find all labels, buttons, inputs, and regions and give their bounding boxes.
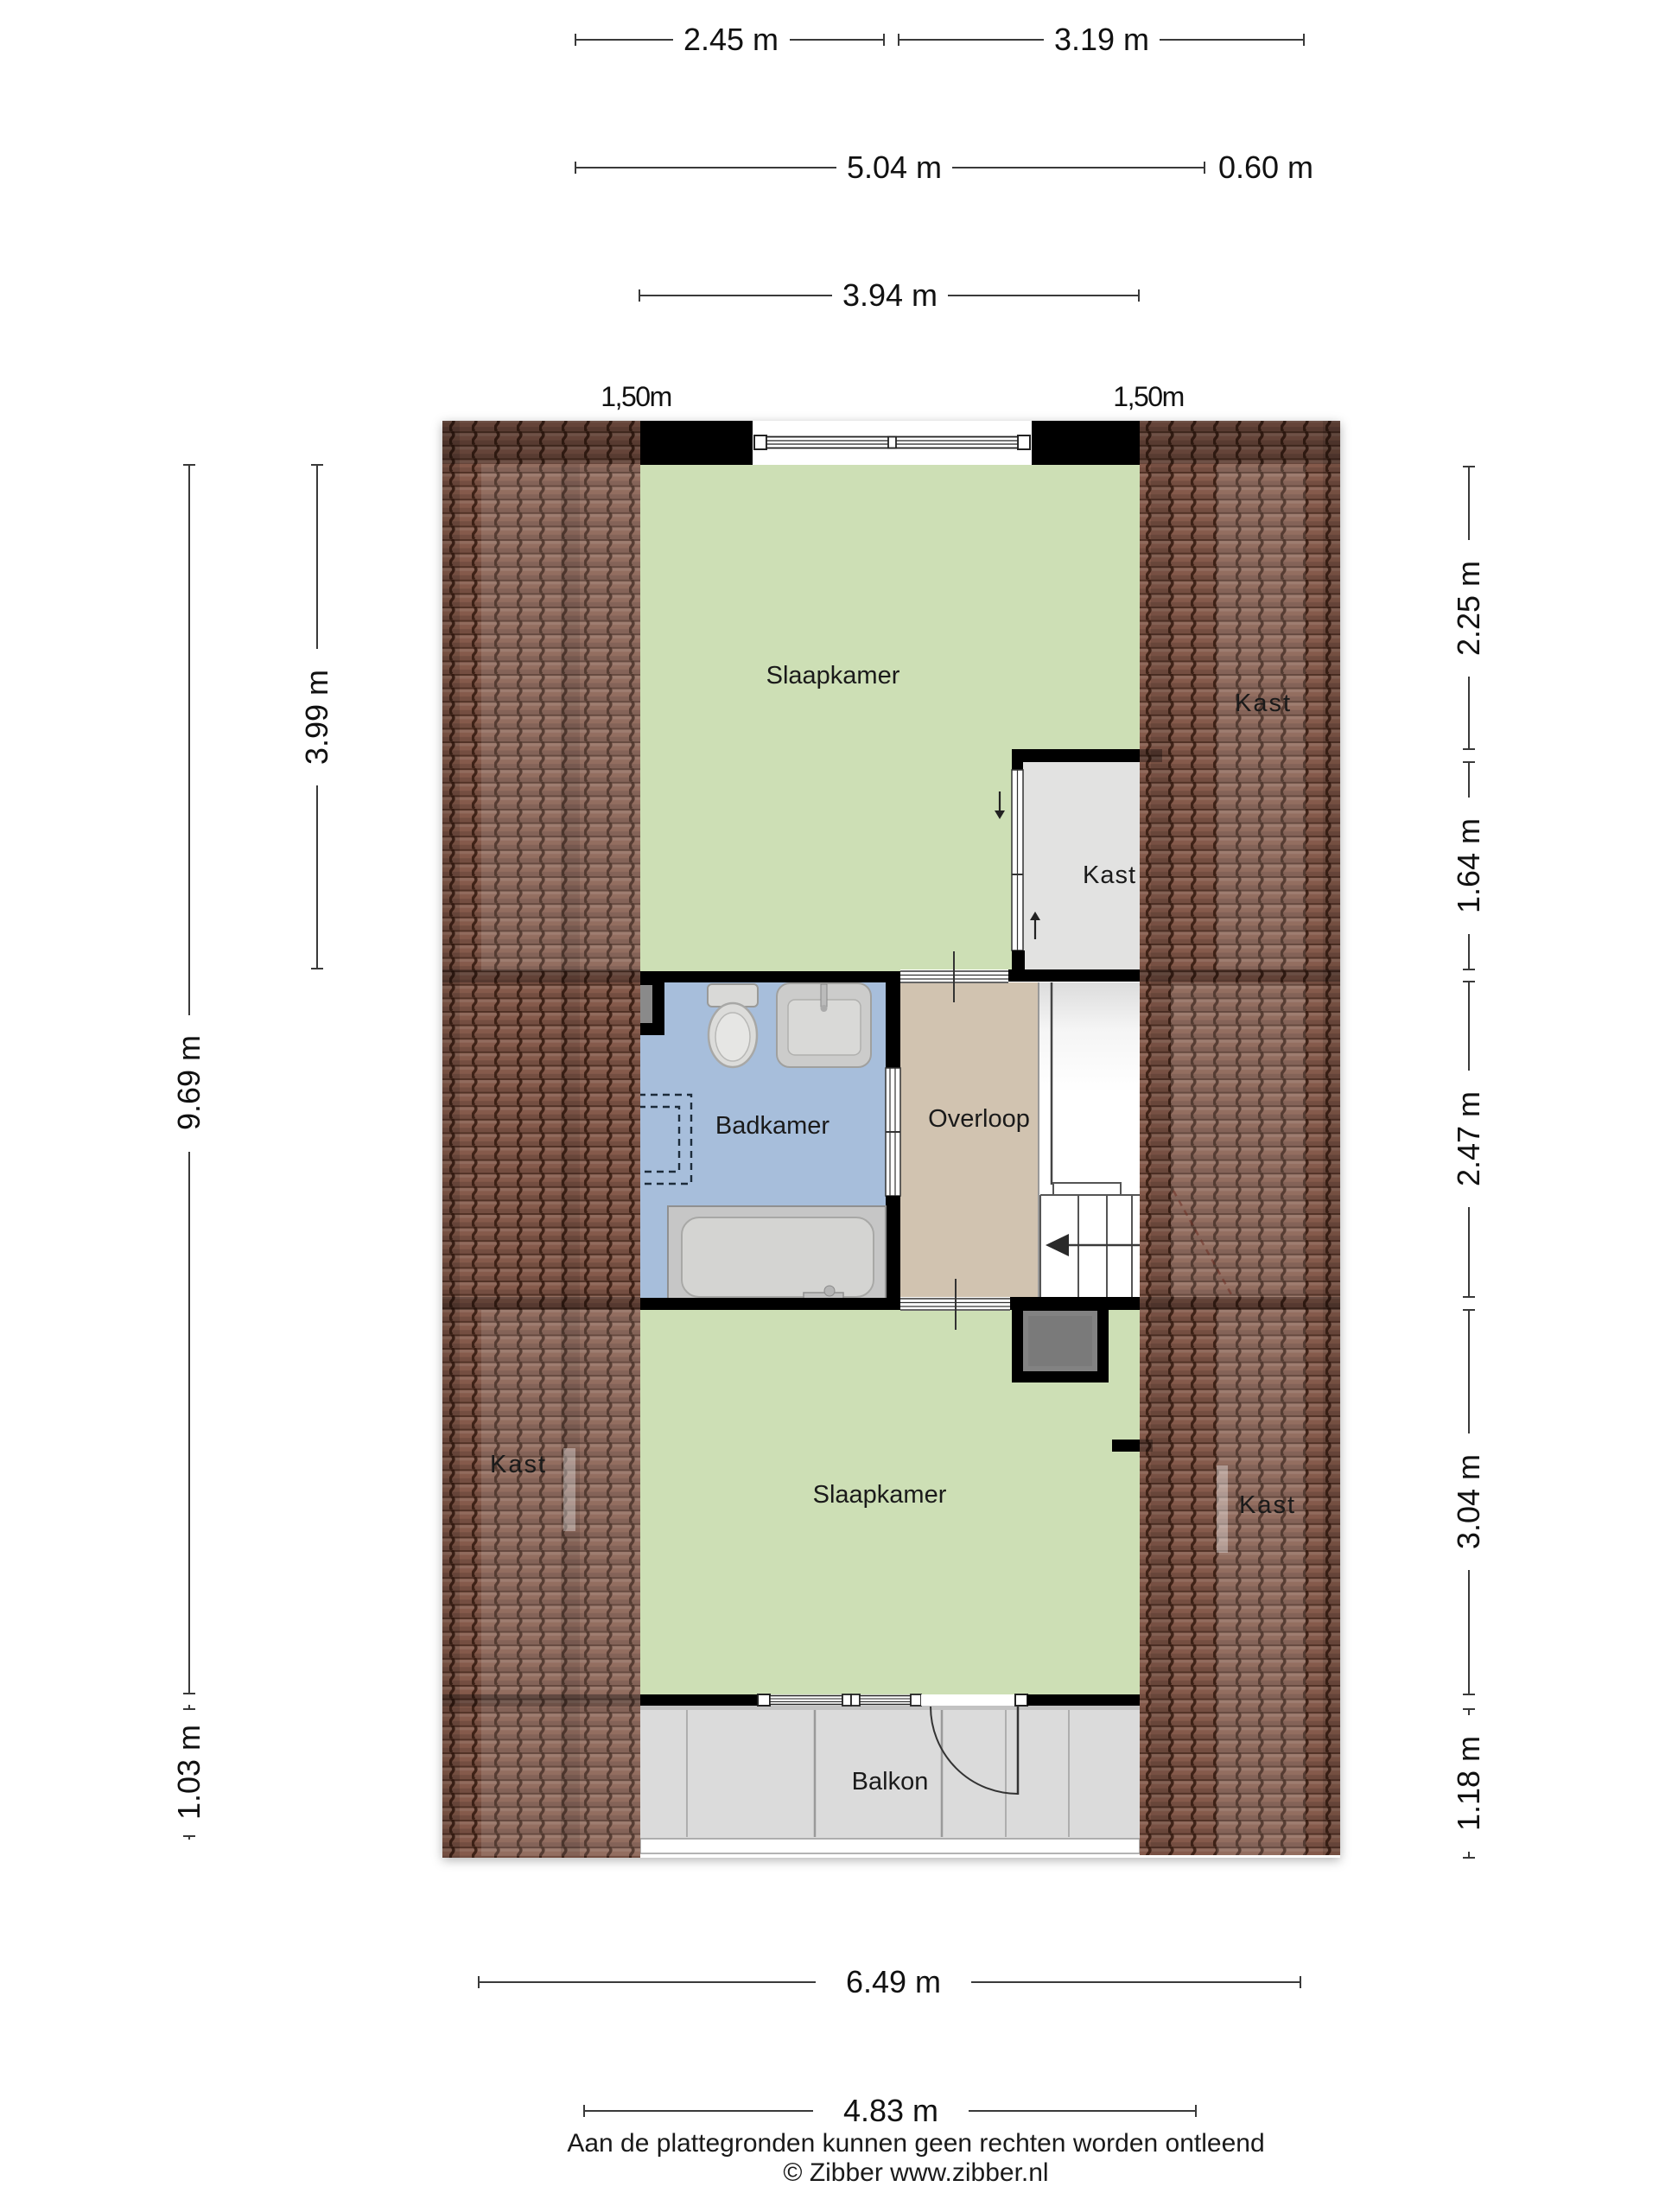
svg-text:3.19 m: 3.19 m bbox=[1054, 22, 1149, 57]
svg-text:4.83 m: 4.83 m bbox=[843, 2093, 938, 2128]
svg-text:Kast: Kast bbox=[490, 1451, 547, 1478]
svg-text:1.03 m: 1.03 m bbox=[171, 1725, 207, 1820]
svg-text:3.94 m: 3.94 m bbox=[842, 277, 938, 313]
svg-text:Slaapkamer: Slaapkamer bbox=[766, 662, 900, 690]
svg-text:Kast: Kast bbox=[1239, 1491, 1296, 1519]
svg-text:1,50m: 1,50m bbox=[601, 381, 671, 412]
svg-text:3.04 m: 3.04 m bbox=[1451, 1454, 1486, 1549]
svg-text:2.47 m: 2.47 m bbox=[1451, 1091, 1486, 1186]
svg-text:3.99 m: 3.99 m bbox=[299, 670, 334, 765]
svg-text:1,50m: 1,50m bbox=[1113, 381, 1183, 412]
svg-text:1.64 m: 1.64 m bbox=[1451, 818, 1486, 913]
svg-text:Badkamer: Badkamer bbox=[715, 1112, 830, 1140]
svg-text:2.25 m: 2.25 m bbox=[1451, 561, 1486, 656]
svg-text:0.60 m: 0.60 m bbox=[1218, 149, 1313, 185]
svg-text:5.04 m: 5.04 m bbox=[847, 149, 942, 185]
svg-text:2.45 m: 2.45 m bbox=[683, 22, 779, 57]
svg-text:Aan de plattegronden kunnen ge: Aan de plattegronden kunnen geen rechten… bbox=[567, 2129, 1264, 2158]
svg-text:6.49 m: 6.49 m bbox=[846, 1964, 941, 1999]
svg-text:Slaapkamer: Slaapkamer bbox=[813, 1481, 947, 1509]
svg-text:9.69 m: 9.69 m bbox=[171, 1035, 207, 1130]
svg-text:© Zibber www.zibber.nl: © Zibber www.zibber.nl bbox=[783, 2158, 1048, 2187]
svg-text:1.18 m: 1.18 m bbox=[1451, 1736, 1486, 1831]
svg-text:Kast: Kast bbox=[1083, 861, 1136, 889]
svg-text:Balkon: Balkon bbox=[852, 1768, 929, 1796]
svg-text:Overloop: Overloop bbox=[928, 1105, 1030, 1133]
svg-text:Kast: Kast bbox=[1235, 690, 1292, 717]
